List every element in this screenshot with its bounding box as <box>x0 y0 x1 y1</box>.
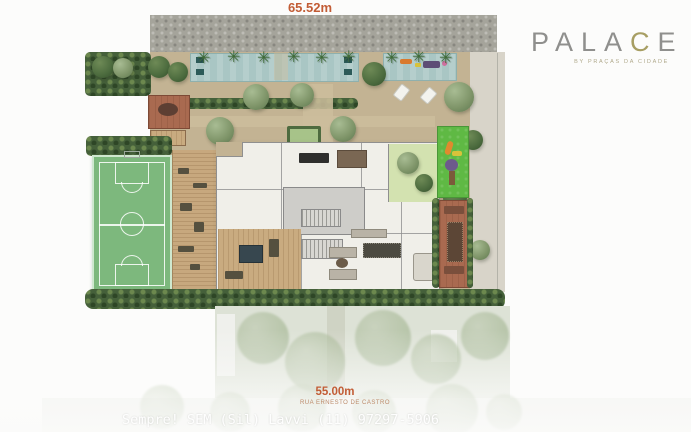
play-structure-post <box>449 171 455 185</box>
sofa <box>329 269 357 280</box>
sofa <box>329 247 357 258</box>
gym-equipment <box>194 222 204 232</box>
tree-icon <box>355 310 411 366</box>
main-building <box>216 142 440 292</box>
tree-icon <box>444 82 474 112</box>
pool-start-block <box>344 69 352 75</box>
aqua-play-purple <box>423 61 440 68</box>
tree-icon <box>470 240 490 260</box>
long-table <box>363 243 401 258</box>
court-key-top <box>115 162 149 184</box>
tree-icon <box>237 312 289 364</box>
tree-icon <box>411 334 461 384</box>
top-dimension-label: 65.52m <box>260 0 360 15</box>
terrace-bench <box>444 266 464 274</box>
terrace-bench <box>444 206 464 214</box>
logo-accent-letter: C <box>630 27 658 57</box>
court-goal-top <box>124 151 140 158</box>
gym-equipment <box>193 183 207 188</box>
deck-furniture <box>225 271 243 279</box>
street-name-label: RUA ERNESTO DE CASTRO <box>285 400 405 406</box>
gym-equipment <box>190 264 200 270</box>
gym-equipment <box>178 168 189 174</box>
dining-table <box>337 150 367 168</box>
tree-icon <box>148 56 170 78</box>
tree-icon <box>113 58 133 78</box>
watermark-text: Sempre! SEM (Sil) Lavvi (11) 97297-5906 <box>122 412 439 428</box>
brand-logo: PALACE BY PRAÇAS DA CIDADE <box>531 27 681 65</box>
tree-icon <box>461 312 509 360</box>
gym-equipment <box>180 203 192 211</box>
tree-icon <box>330 116 356 142</box>
site-plan-image: 65.52m PALACE BY PRAÇAS DA CIDADE <box>0 0 691 432</box>
bottom-dimension-label: 55.00m <box>295 386 375 398</box>
tree-icon <box>206 117 234 145</box>
tree-icon <box>362 62 386 86</box>
tree-icon <box>168 62 188 82</box>
tree-icon <box>243 84 269 110</box>
water-feature <box>239 245 263 263</box>
patio-table <box>158 103 178 116</box>
logo-subtitle: BY PRAÇAS DA CIDADE <box>531 59 669 65</box>
terrace-long-table <box>447 222 463 262</box>
coffee-table <box>336 258 348 268</box>
winter-garden <box>388 144 439 202</box>
garden-gap <box>217 314 235 376</box>
kitchen-island <box>299 153 329 163</box>
sports-court <box>92 155 172 293</box>
tree-icon <box>285 332 345 392</box>
tree-icon <box>290 83 314 107</box>
street-garden <box>215 306 510 398</box>
court-key-bottom <box>115 264 149 286</box>
play-structure-yellow <box>452 151 462 156</box>
tree-icon <box>415 174 433 192</box>
pool-bridge <box>274 53 288 80</box>
stairs <box>301 209 341 227</box>
bar-counter <box>351 229 387 238</box>
playground <box>437 126 469 198</box>
play-structure-purple <box>445 159 458 171</box>
building-notch <box>216 142 243 157</box>
terrace-hedge-right <box>467 198 473 288</box>
aqua-play-orange <box>400 59 412 64</box>
tree-icon <box>486 394 522 430</box>
gym-equipment <box>178 246 194 252</box>
tree-icon <box>397 152 419 174</box>
deck-furniture <box>269 239 279 257</box>
pool-start-block <box>196 69 204 75</box>
logo-wordmark: PALACE <box>531 27 681 58</box>
tree-icon <box>92 56 114 78</box>
court-center-circle <box>120 212 144 236</box>
